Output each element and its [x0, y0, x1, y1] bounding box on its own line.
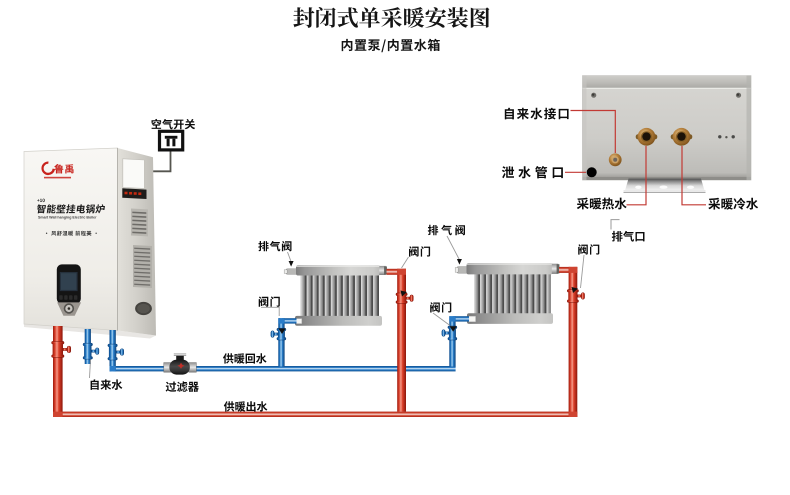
svg-text:Smart Wall hanging Electric Bo: Smart Wall hanging Electric Boiler — [38, 216, 97, 220]
